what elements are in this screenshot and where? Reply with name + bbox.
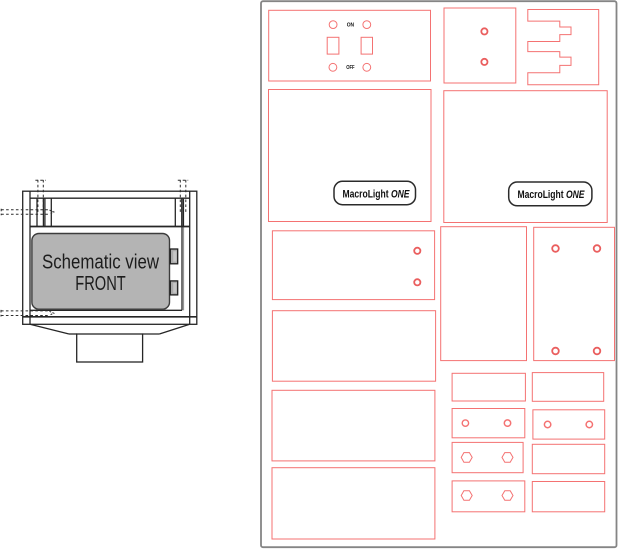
svg-text:FRONT: FRONT: [75, 273, 126, 295]
svg-text:OFF: OFF: [346, 65, 355, 71]
svg-text:ON: ON: [347, 22, 354, 28]
svg-text:Schematic view: Schematic view: [42, 252, 159, 274]
svg-text:MacroLight ONE: MacroLight ONE: [343, 188, 410, 200]
svg-text:MacroLight ONE: MacroLight ONE: [518, 189, 585, 201]
